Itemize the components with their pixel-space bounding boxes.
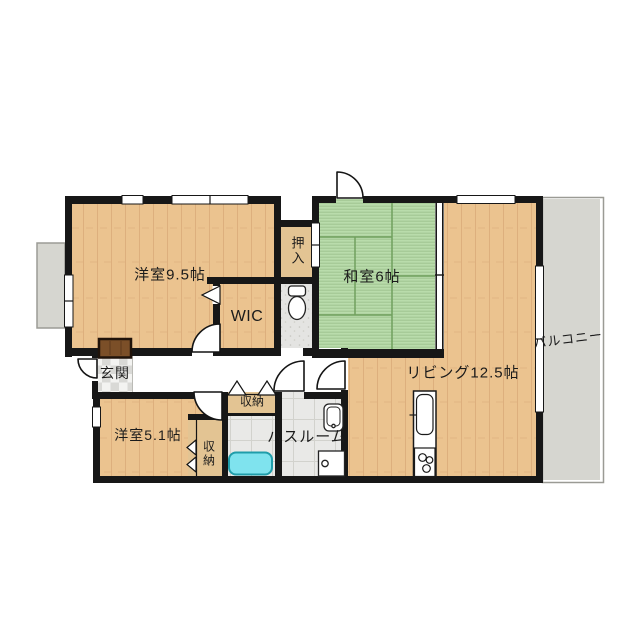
- room-label-living: リビング12.5帖: [406, 362, 519, 383]
- room-label-japanese: 和室6帖: [343, 266, 400, 287]
- room-label-storage-west2: 収納: [201, 440, 218, 468]
- window-western1-top-small: [122, 196, 143, 205]
- kitchen-counter-icon: [410, 391, 437, 477]
- door-arc-japanese-top: [337, 172, 363, 198]
- room-label-entrance: 玄関: [100, 363, 130, 383]
- floorplan-canvas: 洋室9.5帖 WIC 押入 和室6帖 リビング12.5帖 バルコニー 玄関 洋室…: [0, 0, 640, 640]
- room-label-wic: WIC: [231, 308, 264, 326]
- washer-pan-icon: [319, 451, 345, 476]
- room-label-bathroom: バスルーム: [267, 426, 347, 447]
- sliding-door-japanese-living: [435, 202, 444, 349]
- room-label-oshiire: 押入: [288, 236, 307, 266]
- balcony-left: [37, 243, 65, 328]
- entrance-doormat: [99, 339, 131, 358]
- room-label-storage-hall: 収納: [240, 393, 264, 410]
- toilet-icon: [289, 286, 306, 320]
- window-western2-left: [93, 407, 101, 427]
- room-label-western1: 洋室9.5帖: [134, 264, 206, 285]
- bathtub-icon: [229, 453, 272, 475]
- floorplan-drawing: [0, 0, 640, 640]
- window-living-top: [457, 196, 515, 204]
- floor-living-upper: [436, 196, 536, 356]
- room-label-western2: 洋室5.1帖: [114, 425, 181, 445]
